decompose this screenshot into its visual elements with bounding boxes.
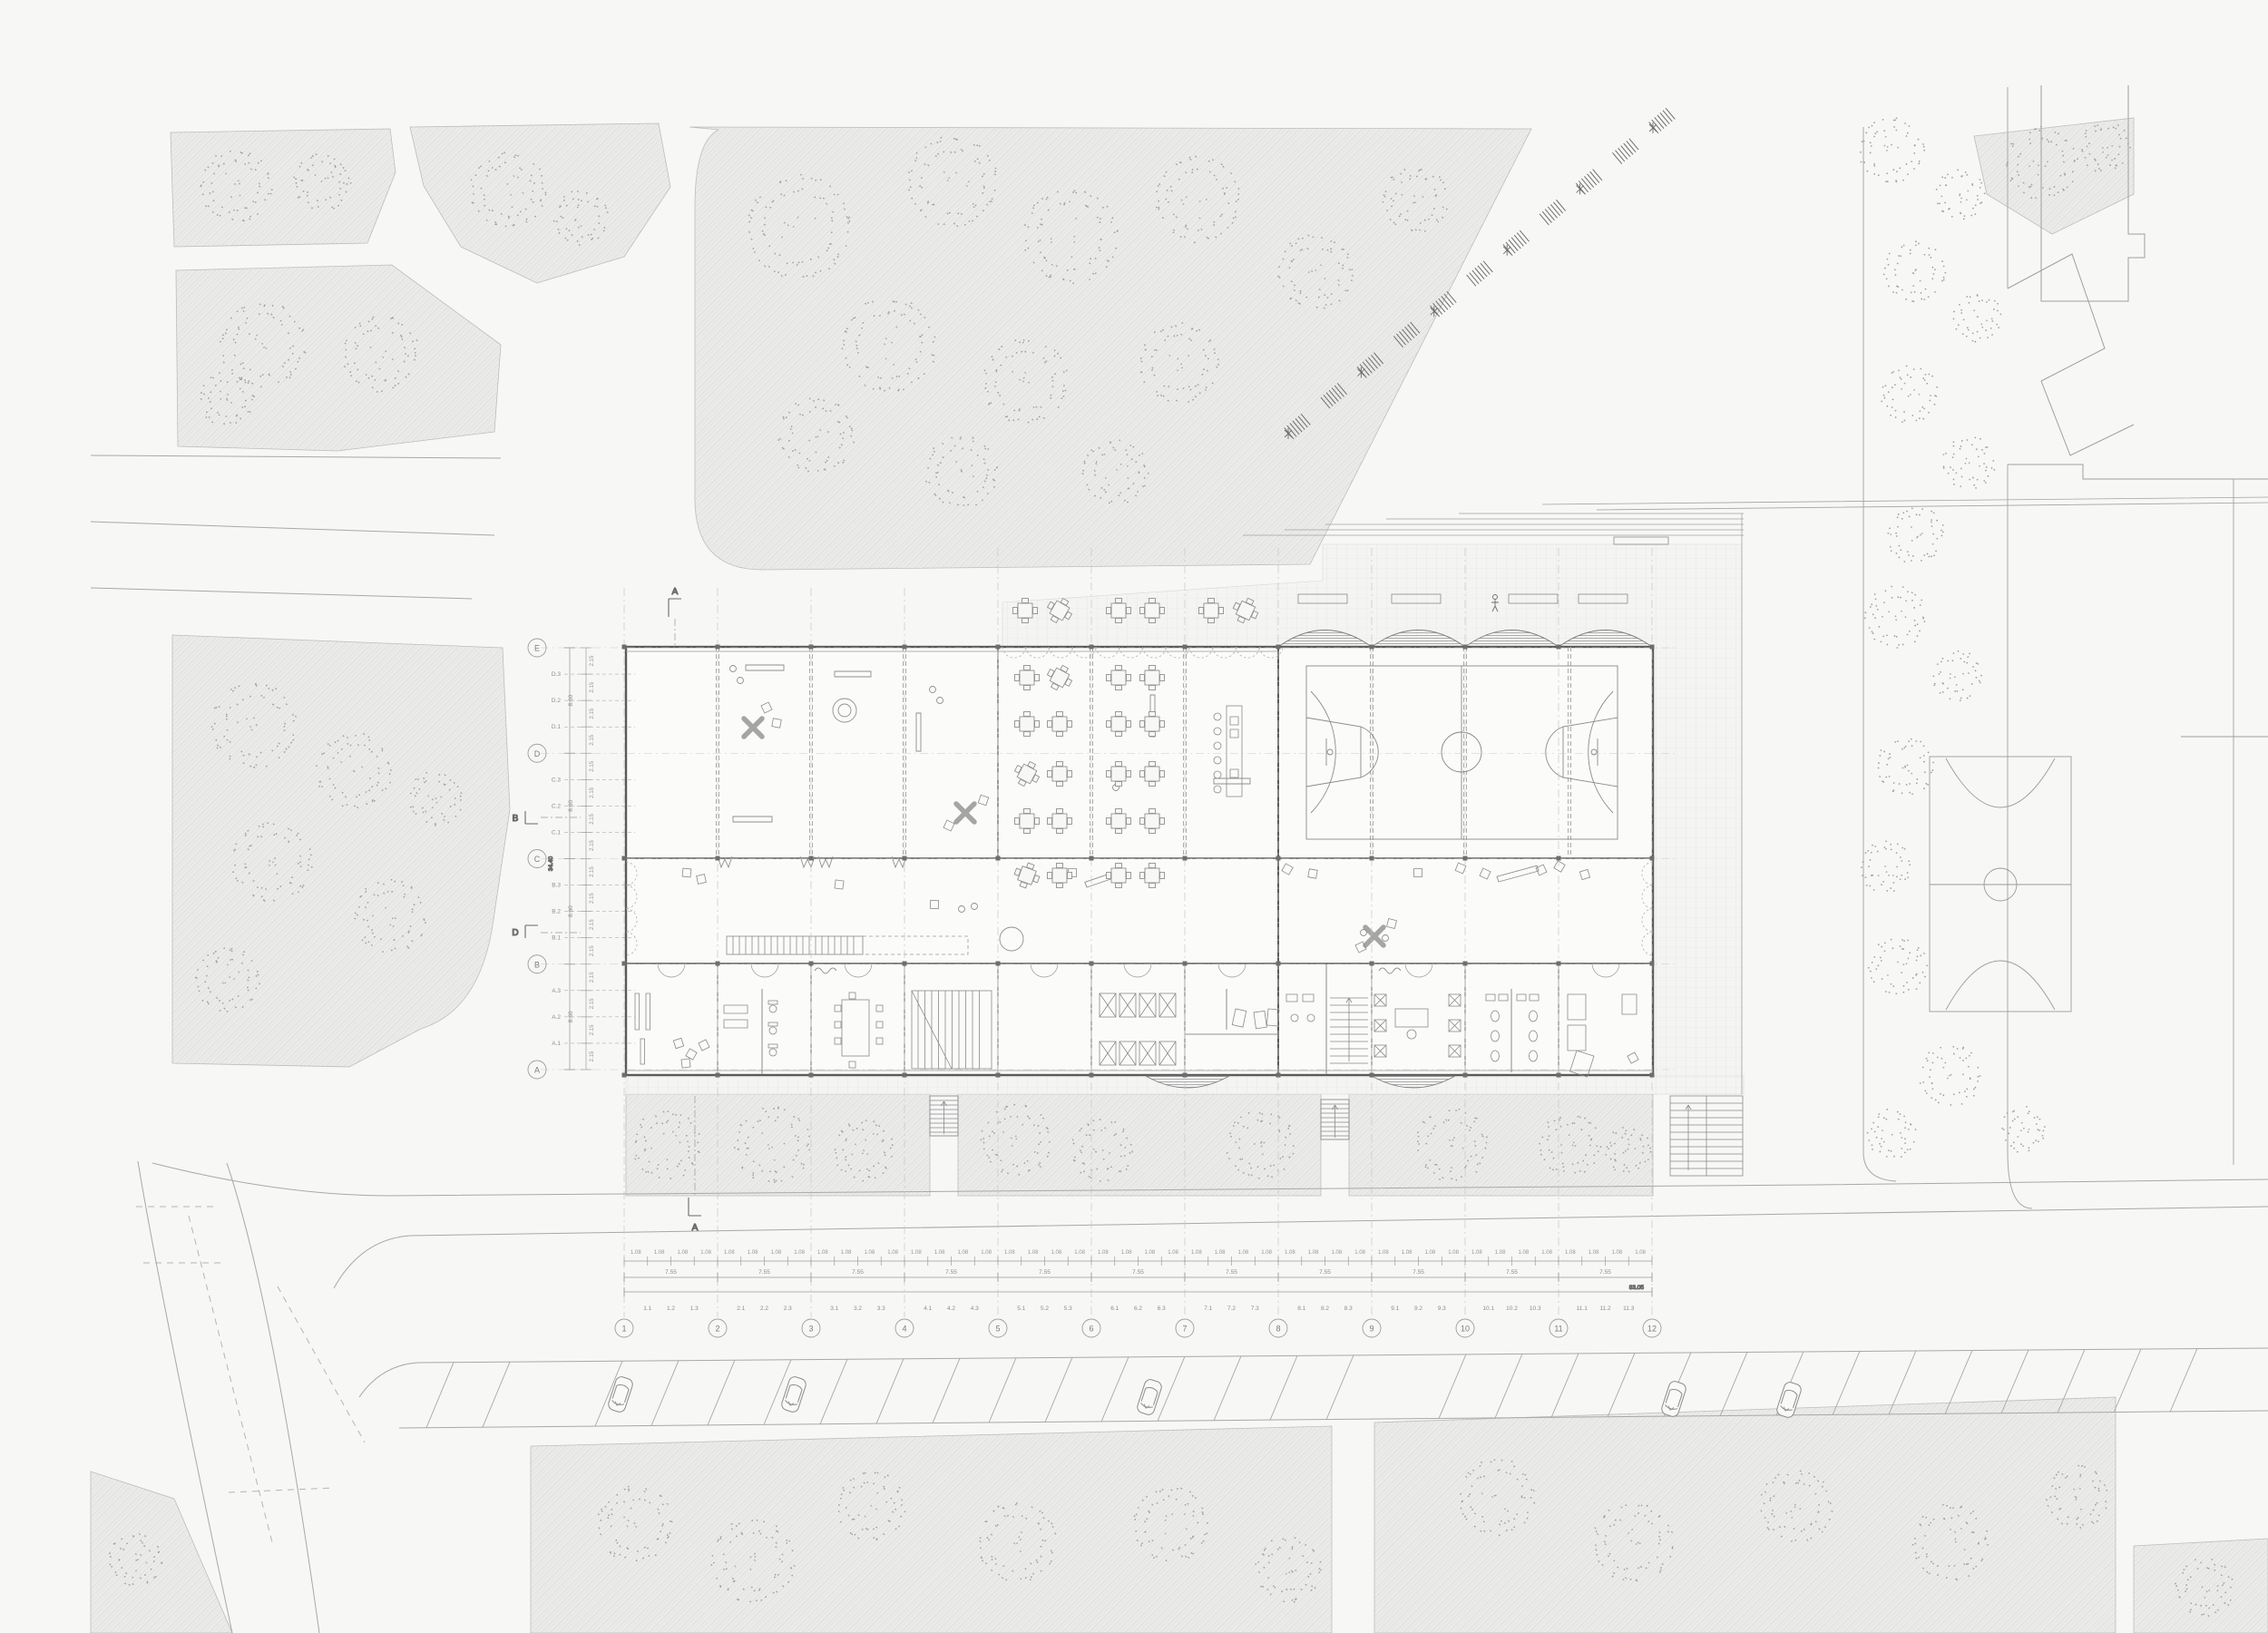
dimension-label: 1.08 <box>958 1250 969 1256</box>
dimension-label: 7.55 <box>1506 1269 1518 1276</box>
dimension-label: 5 <box>995 1325 1000 1334</box>
dimension-label: D.3 <box>552 671 562 678</box>
dimension-label: 7.55 <box>1599 1269 1611 1276</box>
dimension-label: 6.3 <box>1158 1305 1166 1312</box>
structural-column <box>903 856 907 861</box>
dimension-label: 2.15 <box>590 919 595 930</box>
dimension-label: 6.1 <box>1110 1305 1119 1312</box>
dimension-label: 1.08 <box>631 1250 641 1256</box>
dimension-label: 8 <box>1276 1325 1280 1334</box>
structural-column <box>716 962 720 966</box>
dimension-label: 4.3 <box>971 1305 979 1312</box>
structural-column <box>1463 962 1468 966</box>
structural-column <box>1650 856 1655 861</box>
structural-column <box>716 1073 720 1078</box>
dimension-label: 1.08 <box>1519 1250 1530 1256</box>
dimension-label: 2 <box>715 1325 719 1334</box>
structural-column <box>1276 645 1281 650</box>
park-area-west <box>172 635 510 1067</box>
dimension-label: 7.55 <box>1039 1269 1051 1276</box>
dimension-label: 8.1 <box>1297 1305 1305 1312</box>
structural-column <box>1557 1073 1561 1078</box>
structural-column <box>1276 1073 1281 1078</box>
dimension-label: 10.1 <box>1482 1305 1494 1312</box>
dimension-label: 3.1 <box>830 1305 838 1312</box>
total-dimension-vertical: 34.40 <box>548 856 554 871</box>
dimension-label: 2.15 <box>590 813 595 824</box>
dimension-label: 1.08 <box>654 1250 665 1256</box>
structural-column <box>996 962 1001 966</box>
dimension-label: 9.1 <box>1391 1305 1399 1312</box>
dimension-label: 11.1 <box>1577 1305 1589 1312</box>
dimension-label: 4.1 <box>924 1305 932 1312</box>
dimension-label: 9 <box>1369 1325 1374 1334</box>
dimension-label: 7.55 <box>1226 1269 1237 1276</box>
dimension-label: E <box>534 644 540 653</box>
dimension-label: 1.08 <box>1074 1250 1085 1256</box>
dimension-label: 1.08 <box>841 1250 852 1256</box>
dimension-label: 2.15 <box>590 681 595 692</box>
dimension-label: A.3 <box>552 988 561 994</box>
dimension-label: 1.08 <box>1565 1250 1576 1256</box>
dimension-label: 5.1 <box>1017 1305 1025 1312</box>
dimension-label: B.3 <box>552 883 561 889</box>
dimension-label: 1.08 <box>1261 1250 1272 1256</box>
structural-column <box>996 645 1001 650</box>
dimension-label: 1.08 <box>700 1250 711 1256</box>
dimension-label: 9.3 <box>1438 1305 1446 1312</box>
dimension-label: 1.08 <box>1308 1250 1319 1256</box>
structural-column <box>716 645 720 650</box>
dimension-label: 2.15 <box>590 1024 595 1035</box>
section-letter-north: A <box>672 587 679 597</box>
dimension-label: 1.08 <box>1191 1250 1202 1256</box>
dimension-label: 1.08 <box>771 1250 782 1256</box>
structural-column <box>809 962 814 966</box>
dimension-label: 3.2 <box>854 1305 862 1312</box>
structural-column <box>903 962 907 966</box>
structural-column <box>622 856 627 861</box>
structural-column <box>1276 856 1281 861</box>
dimension-label: 12 <box>1647 1325 1657 1334</box>
dimension-label: 8.3 <box>1344 1305 1353 1312</box>
dimension-label: 9.2 <box>1414 1305 1422 1312</box>
school-garden-strip <box>958 1094 1321 1196</box>
dimension-label: 6 <box>1089 1325 1093 1334</box>
planting-strip-south <box>1374 1397 2116 1633</box>
dimension-label: B <box>534 960 540 969</box>
dimension-label: 1.1 <box>643 1305 651 1312</box>
dimension-label: D.2 <box>552 698 562 704</box>
dimension-label: 2.1 <box>737 1305 745 1312</box>
total-dimension-horizontal: 83.05 <box>1629 1285 1645 1291</box>
dimension-label: C.2 <box>552 803 562 809</box>
dimension-label: 11.2 <box>1599 1305 1611 1312</box>
section-letter-south: A <box>692 1223 699 1233</box>
structural-column <box>1090 856 1094 861</box>
dimension-label: 5.2 <box>1041 1305 1049 1312</box>
structural-column <box>903 645 907 650</box>
dimension-label: 1.08 <box>1354 1250 1365 1256</box>
structural-column <box>1463 856 1468 861</box>
dimension-label: 6.2 <box>1134 1305 1142 1312</box>
structural-column <box>809 645 814 650</box>
structural-column <box>1183 962 1188 966</box>
dimension-label: D.1 <box>552 724 562 730</box>
structural-column <box>622 1073 627 1078</box>
dimension-label: 10.3 <box>1530 1305 1541 1312</box>
dimension-label: 1.08 <box>1238 1250 1249 1256</box>
structural-column <box>1463 645 1468 650</box>
dimension-label: 7 <box>1182 1325 1187 1334</box>
dimension-label: 1.08 <box>1028 1250 1039 1256</box>
planting-corner <box>2134 1539 2268 1633</box>
dimension-label: 1.08 <box>1448 1250 1459 1256</box>
dimension-label: 7.55 <box>945 1269 957 1276</box>
structural-column <box>622 962 627 966</box>
dimension-label: 2.15 <box>590 945 595 956</box>
dimension-label: 7.55 <box>1132 1269 1144 1276</box>
structural-column <box>1557 645 1561 650</box>
structural-column <box>1463 1073 1468 1078</box>
dimension-label: 2.15 <box>590 655 595 666</box>
dimension-label: 2.2 <box>760 1305 768 1312</box>
dimension-label: 1.08 <box>1378 1250 1389 1256</box>
planting-area <box>171 129 396 247</box>
dimension-label: 2.15 <box>590 734 595 745</box>
dimension-label: 1.08 <box>1635 1250 1646 1256</box>
section-letter-west-lower: D <box>512 928 518 938</box>
dimension-label: 2.15 <box>590 787 595 797</box>
dimension-label: 1.08 <box>794 1250 805 1256</box>
dimension-label: 1.08 <box>981 1250 992 1256</box>
structural-column <box>1276 962 1281 966</box>
structural-column <box>809 1073 814 1078</box>
dimension-label: 1 <box>621 1325 626 1334</box>
dimension-label: 7.3 <box>1251 1305 1259 1312</box>
structural-column <box>809 856 814 861</box>
structural-column <box>1650 1073 1655 1078</box>
dimension-label: 1.08 <box>1121 1250 1132 1256</box>
structural-column <box>1370 962 1374 966</box>
planting-strip-south <box>531 1426 1332 1633</box>
structural-column <box>1183 856 1188 861</box>
dimension-label: 1.08 <box>1215 1250 1226 1256</box>
site-plan-sheet: 1.081.081.081.081.081.081.081.081.081.08… <box>0 0 2268 1633</box>
dimension-label: A.2 <box>552 1014 561 1021</box>
dimension-label: 2.15 <box>590 708 595 719</box>
dimension-label: 2.3 <box>784 1305 792 1312</box>
structural-column <box>1090 962 1094 966</box>
dimension-label: 1.08 <box>911 1250 922 1256</box>
dimension-label: 2.15 <box>590 998 595 1009</box>
dimension-label: 1.2 <box>667 1305 675 1312</box>
structural-column <box>1370 856 1374 861</box>
structural-column <box>1370 1073 1374 1078</box>
dimension-label: 1.08 <box>865 1250 875 1256</box>
dimension-label: 2.15 <box>590 760 595 771</box>
structural-column <box>1183 1073 1188 1078</box>
dimension-label: 11 <box>1554 1325 1562 1334</box>
dimension-label: B.1 <box>552 935 561 942</box>
structural-column <box>996 1073 1001 1078</box>
dimension-label: C <box>534 855 541 864</box>
dimension-label: C.1 <box>552 829 562 836</box>
structural-column <box>903 1073 907 1078</box>
dimension-label: 1.08 <box>1004 1250 1015 1256</box>
dimension-label: 2.15 <box>590 1051 595 1061</box>
structural-column <box>716 856 720 861</box>
dimension-label: 1.08 <box>1145 1250 1156 1256</box>
dimension-label: 7.55 <box>1319 1269 1331 1276</box>
structural-column <box>1557 856 1561 861</box>
dimension-label: 4 <box>902 1325 906 1334</box>
dimension-label: B.2 <box>552 909 561 915</box>
structural-column <box>1183 645 1188 650</box>
structural-column <box>622 645 627 650</box>
structural-column <box>1650 645 1655 650</box>
dimension-label: 7.55 <box>852 1269 864 1276</box>
dimension-label: 1.08 <box>1168 1250 1178 1256</box>
dimension-label: 7.55 <box>665 1269 677 1276</box>
dimension-label: A <box>534 1066 540 1075</box>
dimension-label: D <box>534 749 541 758</box>
dimension-label: 1.08 <box>1098 1250 1109 1256</box>
dimension-label: 1.08 <box>1471 1250 1482 1256</box>
dimension-label: 10.2 <box>1506 1305 1518 1312</box>
dimension-label: 11.3 <box>1623 1305 1635 1312</box>
dimension-label: 8.2 <box>1321 1305 1329 1312</box>
dimension-label: 1.08 <box>1425 1250 1436 1256</box>
dimension-label: 3 <box>808 1325 813 1334</box>
dimension-label: 1.08 <box>1541 1250 1552 1256</box>
dimension-label: 1.08 <box>1495 1250 1506 1256</box>
structural-column <box>1557 962 1561 966</box>
structural-column <box>1090 1073 1094 1078</box>
dimension-label: 1.08 <box>1332 1250 1343 1256</box>
school-garden-strip <box>626 1094 930 1196</box>
dimension-label: 7.55 <box>1413 1269 1424 1276</box>
dimension-label: 1.08 <box>748 1250 758 1256</box>
dimension-label: 3.3 <box>877 1305 885 1312</box>
section-letter-west-upper: B <box>513 814 519 824</box>
dimension-label: C.3 <box>552 777 562 783</box>
dimension-label: 1.08 <box>1589 1250 1599 1256</box>
dimension-label: 5.3 <box>1064 1305 1072 1312</box>
dimension-label: A.1 <box>552 1041 561 1047</box>
school-garden-strip <box>1349 1094 1653 1196</box>
dimension-label: 2.15 <box>590 866 595 877</box>
site-plan-drawing: 1.081.081.081.081.081.081.081.081.081.08… <box>0 0 2268 1633</box>
dimension-label: 1.08 <box>1285 1250 1295 1256</box>
dimension-label: 7.1 <box>1204 1305 1212 1312</box>
structural-column <box>1650 962 1655 966</box>
dimension-label: 7.2 <box>1227 1305 1236 1312</box>
dimension-label: 2.15 <box>590 893 595 904</box>
dimension-label: 2.15 <box>590 972 595 983</box>
dimension-label: 2.15 <box>590 839 595 850</box>
dimension-label: 1.08 <box>887 1250 898 1256</box>
dimension-label: 1.3 <box>690 1305 699 1312</box>
structural-column <box>996 856 1001 861</box>
dimension-label: 1.08 <box>1402 1250 1413 1256</box>
dimension-label: 1.08 <box>934 1250 945 1256</box>
dimension-label: 1.08 <box>1612 1250 1623 1256</box>
dimension-label: 4.2 <box>947 1305 955 1312</box>
dimension-label: 1.08 <box>817 1250 828 1256</box>
dimension-label: 1.08 <box>678 1250 689 1256</box>
structural-column <box>1090 645 1094 650</box>
structural-column <box>1370 645 1374 650</box>
dimension-label: 7.55 <box>758 1269 770 1276</box>
dimension-label: 10 <box>1461 1325 1470 1334</box>
dimension-label: 1.08 <box>1051 1250 1062 1256</box>
dimension-label: 1.08 <box>724 1250 735 1256</box>
